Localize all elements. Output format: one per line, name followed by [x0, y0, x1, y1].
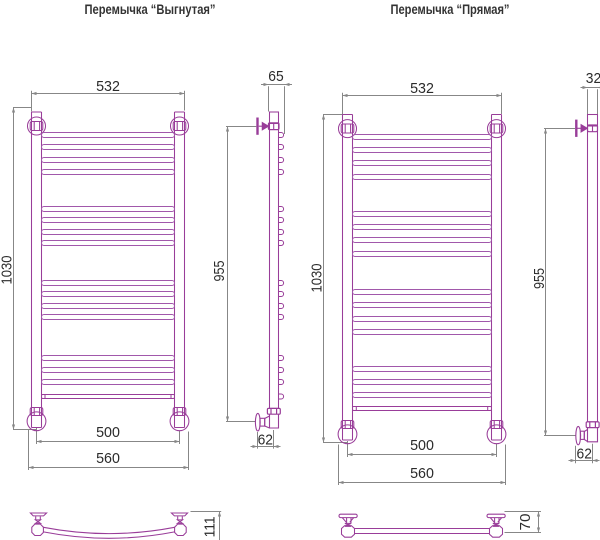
svg-text:1030: 1030 [309, 264, 326, 293]
svg-text:955: 955 [211, 261, 228, 282]
svg-text:955: 955 [531, 268, 548, 289]
svg-text:560: 560 [410, 465, 434, 482]
svg-text:532: 532 [410, 80, 434, 97]
svg-text:70: 70 [517, 514, 534, 531]
svg-text:32: 32 [586, 70, 600, 87]
svg-text:62: 62 [258, 431, 273, 448]
svg-text:500: 500 [96, 424, 120, 441]
svg-text:62: 62 [577, 445, 592, 462]
svg-text:560: 560 [96, 450, 120, 467]
svg-text:1030: 1030 [0, 256, 16, 285]
svg-text:Перемычка “Прямая”: Перемычка “Прямая” [391, 1, 510, 17]
svg-text:532: 532 [96, 78, 120, 95]
svg-text:500: 500 [410, 437, 434, 454]
svg-text:Перемычка “Выгнутая”: Перемычка “Выгнутая” [85, 1, 216, 17]
svg-text:111: 111 [202, 516, 219, 537]
svg-text:65: 65 [268, 68, 283, 85]
